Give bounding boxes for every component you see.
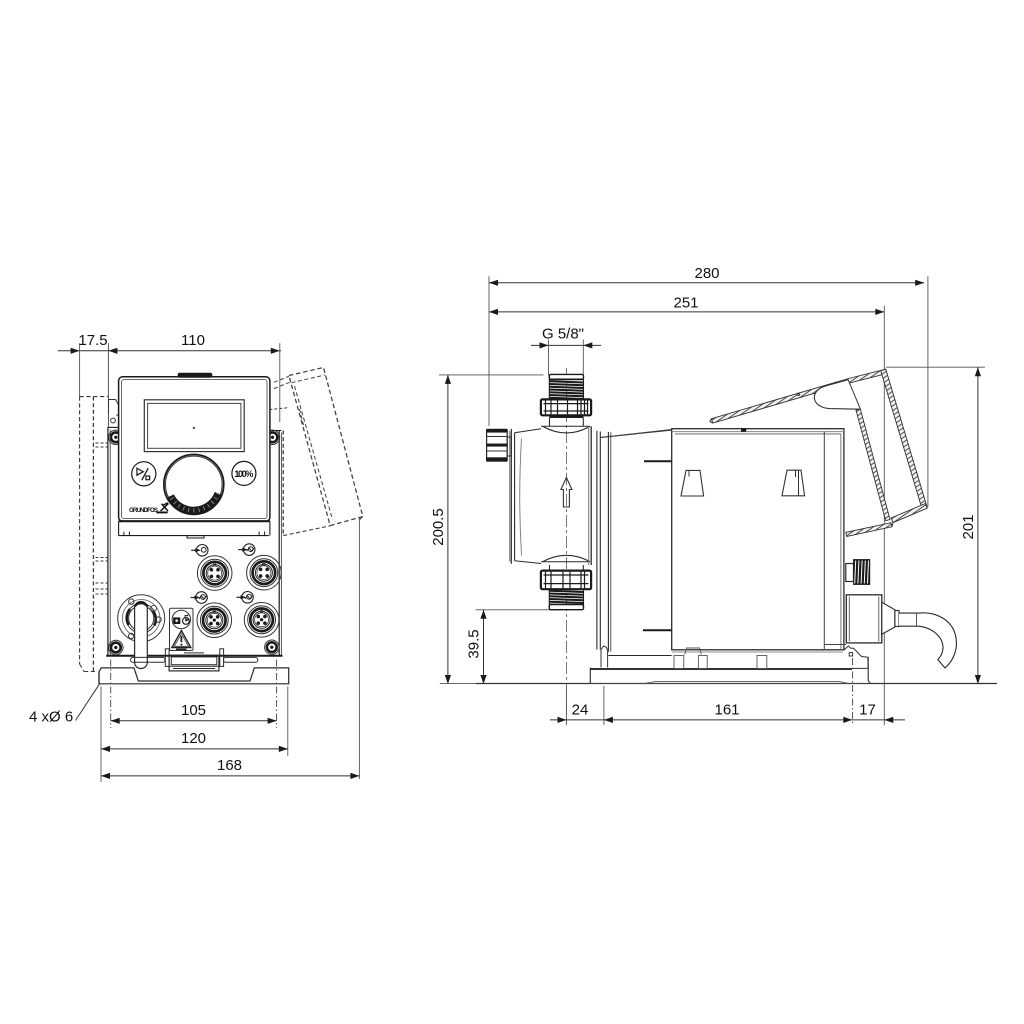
svg-text:24: 24 [572, 701, 589, 718]
svg-text:17.5: 17.5 [78, 332, 107, 349]
svg-text:161: 161 [714, 701, 739, 718]
svg-text:200.5: 200.5 [430, 508, 447, 546]
svg-text:168: 168 [217, 757, 242, 774]
svg-text:201: 201 [960, 514, 977, 539]
svg-text:17: 17 [859, 701, 876, 718]
svg-text:4 xØ 6: 4 xØ 6 [29, 708, 73, 725]
svg-text:280: 280 [694, 265, 719, 282]
svg-text:100%: 100% [234, 469, 253, 479]
svg-text:39.5: 39.5 [466, 629, 483, 658]
svg-text:120: 120 [181, 730, 206, 747]
svg-text:251: 251 [673, 294, 698, 311]
svg-text:GRUNDFOS: GRUNDFOS [129, 507, 158, 514]
svg-text:110: 110 [181, 332, 205, 349]
svg-text:105: 105 [181, 702, 206, 719]
